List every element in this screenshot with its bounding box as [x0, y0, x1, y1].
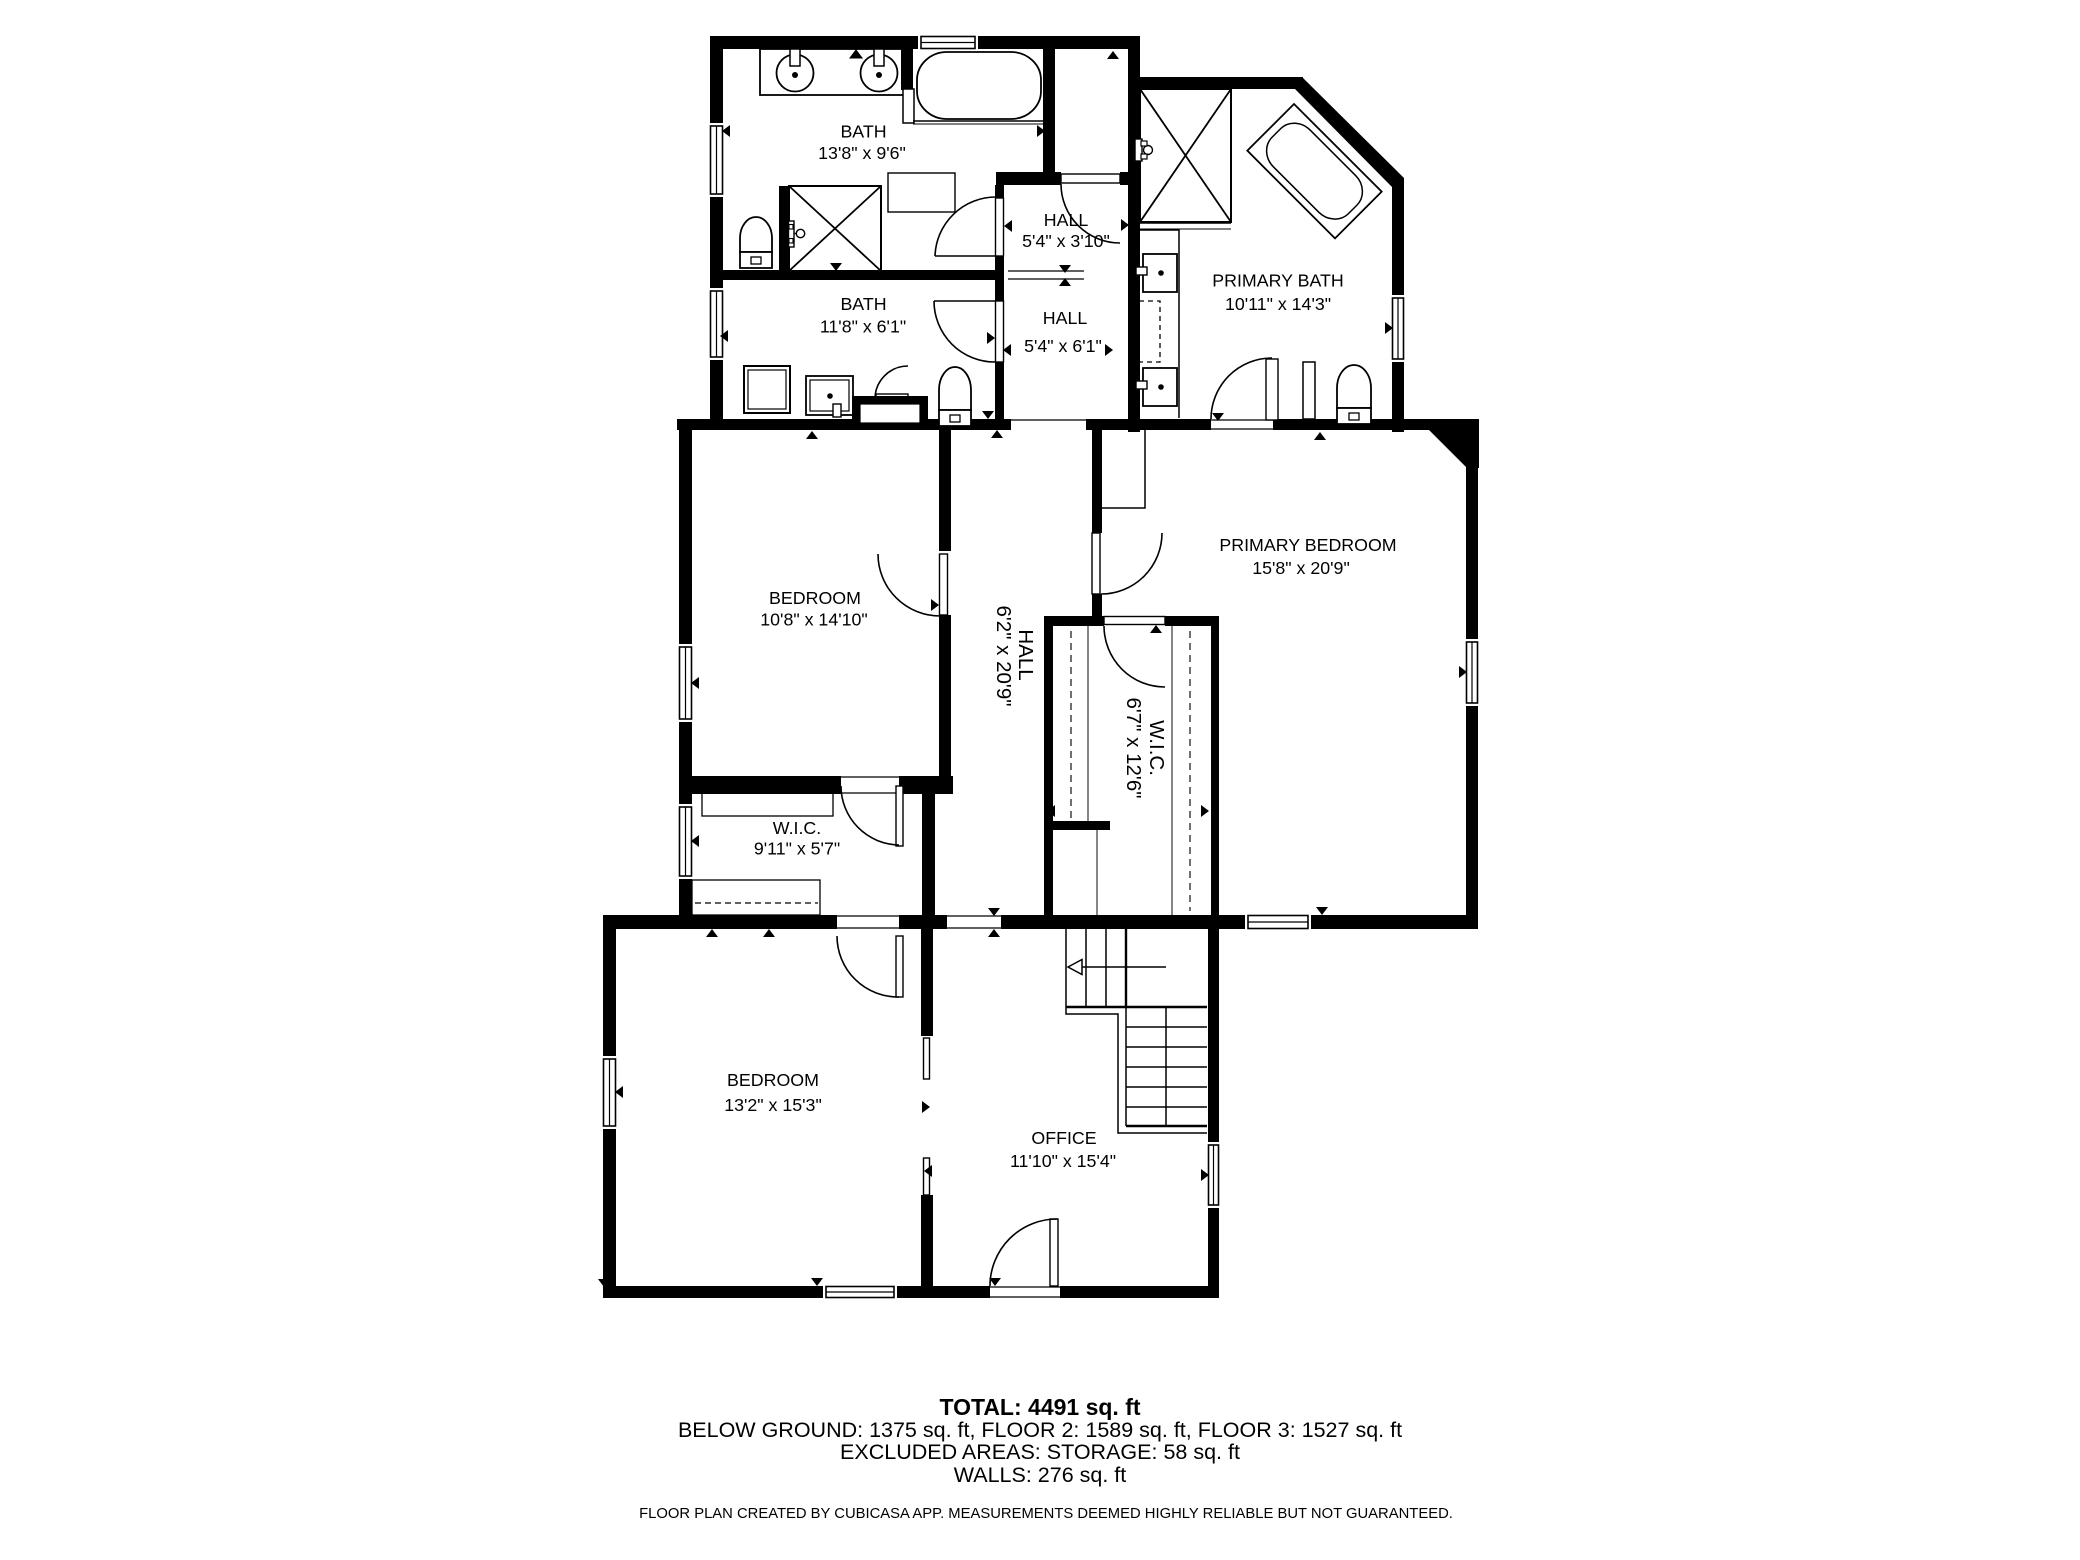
svg-text:13'8" x 9'6": 13'8" x 9'6" — [818, 143, 906, 163]
svg-text:HALL: HALL — [1044, 210, 1089, 230]
svg-text:PRIMARY BEDROOM: PRIMARY BEDROOM — [1219, 535, 1396, 555]
svg-text:BEDROOM: BEDROOM — [769, 588, 861, 608]
svg-text:9'11" x 5'7": 9'11" x 5'7" — [754, 839, 840, 859]
svg-text:TOTAL: 4491 sq. ft: TOTAL: 4491 sq. ft — [939, 1394, 1140, 1420]
svg-text:BATH: BATH — [840, 294, 886, 314]
svg-text:FLOOR PLAN CREATED BY CUBICASA: FLOOR PLAN CREATED BY CUBICASA APP. MEAS… — [639, 1506, 1453, 1522]
svg-text:HALL: HALL — [1043, 308, 1088, 328]
svg-text:W.I.C.: W.I.C. — [1145, 720, 1168, 776]
svg-text:OFFICE: OFFICE — [1031, 1128, 1096, 1148]
svg-text:BATH: BATH — [840, 122, 886, 142]
svg-text:10'11" x 14'3": 10'11" x 14'3" — [1225, 294, 1331, 314]
svg-text:11'8" x 6'1": 11'8" x 6'1" — [820, 317, 906, 337]
svg-text:PRIMARY BATH: PRIMARY BATH — [1212, 271, 1343, 291]
svg-text:EXCLUDED AREAS: STORAGE: 58 sq: EXCLUDED AREAS: STORAGE: 58 sq. ft — [840, 1440, 1240, 1464]
svg-text:BEDROOM: BEDROOM — [727, 1070, 819, 1090]
svg-text:BELOW GROUND: 1375 sq. ft, FLO: BELOW GROUND: 1375 sq. ft, FLOOR 2: 1589… — [678, 1418, 1402, 1442]
svg-text:10'8" x 14'10": 10'8" x 14'10" — [760, 610, 867, 630]
svg-text:15'8" x 20'9": 15'8" x 20'9" — [1252, 558, 1350, 578]
svg-text:6'7" x 12'6": 6'7" x 12'6" — [1122, 697, 1145, 798]
svg-text:5'4" x 6'1": 5'4" x 6'1" — [1024, 336, 1102, 356]
svg-text:W.I.C.: W.I.C. — [773, 818, 821, 838]
svg-text:HALL: HALL — [1014, 629, 1037, 680]
svg-text:11'10" x 15'4": 11'10" x 15'4" — [1010, 1151, 1116, 1171]
svg-text:WALLS: 276 sq. ft: WALLS: 276 sq. ft — [954, 1463, 1127, 1487]
svg-text:6'2" x 20'9": 6'2" x 20'9" — [992, 605, 1015, 706]
svg-text:5'4" x 3'10": 5'4" x 3'10" — [1022, 231, 1110, 251]
svg-text:13'2" x 15'3": 13'2" x 15'3" — [724, 1095, 822, 1115]
